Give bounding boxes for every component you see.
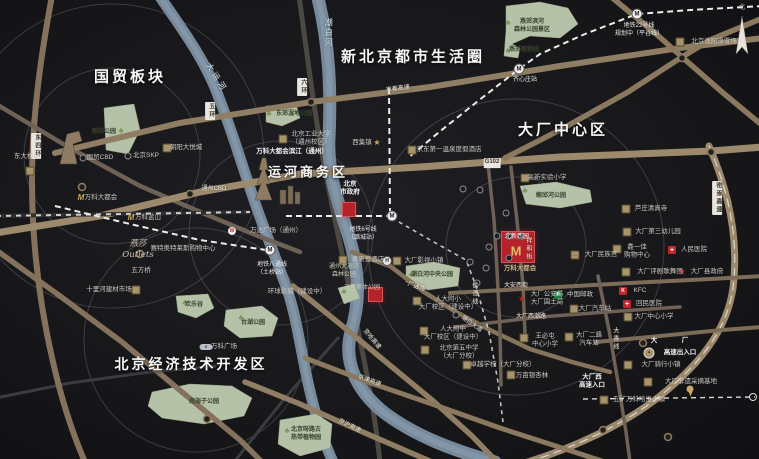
park-dongjiao-wetland: 东郊湿地公园 [276, 111, 312, 119]
poi-dot-icon [80, 155, 87, 162]
poi-dachang-expwy-exit: 高速出入口 [664, 349, 697, 357]
theater-icon [622, 268, 631, 277]
poi-wangbitun-primary: 王必屯 中心小学 [532, 333, 558, 350]
poi-chaoyang-joy-city: 朝阳大悦城 [170, 144, 203, 152]
poi-china-post: 中国邮政 [567, 291, 593, 299]
tree-icon: ♣ [266, 110, 271, 118]
road-jingjin-expwy: 京津高速 [356, 374, 381, 390]
river-dayunhe: 大运河 [203, 61, 229, 94]
road-5th-ring: 五环 [205, 102, 215, 120]
poi-yuyang-ski-resort: 北京渔阳滑雪场 [691, 38, 737, 46]
kindergarten-icon [623, 228, 632, 237]
ski-icon [676, 38, 685, 47]
poi-vanke-plaza: 万科广场 [211, 343, 237, 351]
poi-kfc: KFC [634, 287, 647, 295]
project-brand-name: 万科大都会 [504, 265, 537, 273]
metro-qixinzhuang-station: 齐心庄站 [513, 77, 537, 85]
poi-beijing-no5-middle: 北京第五中学 （大厂分校） [440, 345, 479, 362]
stop-marker-icon [503, 210, 510, 217]
park-happy-valley: 欢乐谷 [185, 302, 203, 310]
poi-ginkgo-forest: 万亩银杏林 [516, 372, 549, 380]
market-icon [132, 286, 141, 295]
minzu-palace-icon: — [571, 251, 580, 260]
zone-dachang-center: 大厂中心区 [518, 120, 608, 140]
picking-base-icon [644, 378, 653, 387]
tree-icon: ♣ [118, 127, 123, 135]
poi-dachang-heritage-picking-base: 大厂非遗采摘基地 [665, 378, 717, 386]
tree-icon: ♣ [505, 19, 510, 27]
poi-dachang-county-govt: 大厂县政府 [691, 268, 724, 276]
poi-beijing-govt: 北京 市政府 [340, 181, 360, 198]
poi-wufangqiao: 五方桥 [131, 267, 151, 275]
govt-star-icon: ★ [518, 295, 526, 304]
park-baoqiu-river: 鲍邱河公园 [536, 193, 566, 201]
poi-zhuoyue-school: 卓越学校（大厂分校） [471, 361, 536, 369]
poi-dachang-pingju-troupe: 大厂评剧歌舞团 [637, 268, 683, 276]
park-chaoyang: 朝阳公园 [92, 129, 116, 137]
wanda-logo-icon: W [228, 227, 236, 235]
poi-bjut-tongzhou-campus: 北京工业大学 （通州校区） [292, 131, 331, 148]
park-chaobai-central: 潮白河中央公园 [411, 272, 453, 280]
road-jingqin-expwy: 京秦高速 [386, 85, 411, 96]
stop-marker-icon [483, 265, 490, 272]
rail-station-icon [26, 167, 35, 176]
poi-jingdong-no1-hot-spring: 京东第一温泉度假酒店 [417, 146, 482, 154]
stop-marker-icon [453, 312, 460, 319]
road-daan-west-st: 大安西街 [504, 283, 528, 291]
location-map: ♣♣♣♣♣♣♣♣♣♣♣—★MMVW++★★MMMMHKP•M国贸板块新北京都市生… [0, 0, 759, 459]
poi-sheraton-hotel: 喜来登酒店 [352, 256, 385, 264]
poi-vanke-lanshan: 万科蓝山 [135, 214, 161, 222]
park-yanjiao-riverside-forest: 燕郊滨河 森林公园景区 [514, 19, 550, 35]
road-changtong-rd: 厂通路 [406, 282, 426, 295]
tree-icon: ♣ [522, 187, 527, 195]
bus-icon [565, 333, 574, 342]
river-chaobai: 潮白河 [323, 18, 333, 48]
university-icon [279, 135, 288, 144]
road-mizhuo-expwy: 密涿高速 [712, 181, 722, 215]
park-nanhaizi: 南海子公园 [189, 399, 219, 407]
stop-marker-icon [486, 244, 493, 251]
hotel-icon [339, 256, 348, 265]
school-icon [520, 334, 529, 343]
stop-marker-icon [494, 233, 501, 240]
zone-guomao: 国贸板块 [94, 67, 166, 87]
poi-guomao-cbd: 国贸CBD [87, 154, 114, 162]
poi-dachang-no2-bus-station: 大厂二路 汽车站 [576, 332, 602, 349]
location-pin-icon [687, 386, 694, 393]
poi-beijing-skp: 北京SKP [133, 152, 159, 160]
measure-end-icon [749, 393, 757, 401]
hospital-cross-icon: + [623, 300, 631, 308]
poi-dachang-west-expwy-entrance: 大厂西 高速入口 [579, 374, 605, 391]
poi-dachang-cycling-town: 大厂骑行小镇 [642, 361, 681, 369]
road-6th-ring: 六环 [297, 78, 307, 96]
zone-new-beijing-life-circle: 新北京都市生活圈 [341, 47, 485, 67]
road-g102: G102 [484, 158, 501, 168]
poi-vanke-metropolis: 万科大都会 [85, 194, 118, 202]
mosque-icon [622, 205, 631, 214]
road-jingha-expwy: 京哈高速 [360, 328, 381, 351]
poi-dongdaqiao-station: 东大桥站 [14, 153, 40, 161]
poi-vanke-metropolis-binjiang: 万科大都会滨江（通州） [256, 148, 328, 156]
poi-xiji-town: 西集镇 [352, 139, 372, 147]
poi-gaoxin-experimental-primary: 高新实验小学 [528, 174, 567, 182]
bus-icon [570, 305, 579, 314]
poi-dachang-central-primary: 大厂中心小学 [635, 313, 674, 321]
poi-dachang-minzu-palace: 大厂民族宫 [585, 251, 618, 259]
poi-wanda-plaza-tongzhou: 万达广场（通州） [250, 227, 302, 235]
town-star-icon: ★ [373, 139, 380, 147]
film-town-icon [393, 257, 402, 266]
metro-station-icon: M [387, 211, 398, 222]
poi-dachang-film-town: 大厂影视小镇 [405, 257, 444, 265]
poi-huimin-hospital: 回民医院 [636, 300, 662, 308]
stop-marker-icon [477, 187, 484, 194]
town-icon [600, 396, 609, 405]
poi-shilihe-building-market: 十里河建材市场 [86, 286, 132, 294]
poi-dachang-bus-station: 大厂汽车站 [579, 305, 612, 313]
poi-saite-outlets-mall: 赛特奥特莱斯购物中心 [151, 245, 216, 253]
hospital-cross-icon: + [668, 246, 676, 254]
poi-dot-icon [125, 153, 132, 160]
road-tongzhou-cbd: 通州CBD [202, 186, 227, 194]
stop-marker-icon [467, 259, 474, 266]
metro-station-icon: M [265, 245, 276, 256]
expwy-exit-icon: • [644, 348, 655, 359]
vanke-logo-icon: M [78, 194, 85, 202]
zone-canal-business-district: 运河商务区 [268, 165, 348, 182]
project-logo-icon: M [511, 245, 522, 258]
poi-universal-studios: 环球影城（建设中） [268, 288, 327, 296]
metro-line22-note: 地铁22号线 规划中（平谷线） [615, 23, 663, 39]
poi-xinyijia-mall: 鑫一佳 购物中心 [624, 244, 650, 261]
metro-batong-tuqiao: 地铁八通线 （土桥站） [257, 262, 287, 278]
zone-bda: 北京经济技术开发区 [115, 355, 268, 373]
road-dachang-xichao-rd: 大厂西潮路 [516, 314, 546, 322]
poi-peoples-hospital: 人民医院 [681, 246, 707, 254]
compass-north-label: 北 [739, 5, 745, 13]
vanke-logo-icon: M [128, 214, 135, 222]
poi-yansha-outlets: 燕莎 Outlets [122, 239, 153, 261]
metro-station-icon: M [632, 9, 643, 20]
poi-rdfz-middle-dachang: 人大附中 大厂校区（建设中） [424, 326, 483, 343]
hotel-icon [408, 146, 417, 155]
poi-dachang-exit-name: 大 厂 [651, 337, 698, 345]
school-icon [624, 313, 633, 322]
poi-dachang-no3-kindergarten: 大厂第三幼儿园 [635, 228, 681, 236]
poi-hello-town: 五矿万科哈洛小镇 [613, 396, 665, 404]
park-yalugu-tropical: 北京呀路古 热带植物园 [291, 427, 321, 443]
map-labels-layer: ♣♣♣♣♣♣♣♣♣♣♣—★MMVW++★★MMMMHKP•M国贸板块新北京都市生… [0, 0, 759, 459]
metro-line6-lucheng: 地铁6号线 （潞城站） [348, 227, 378, 243]
stop-marker-icon [460, 186, 467, 193]
school-icon [421, 346, 430, 355]
metro-station-icon: M [514, 64, 525, 75]
poi-rdfx-primary-dachang: 人大附小 大厂校区（建设中） [419, 296, 478, 313]
park-yanjiao-botanical: 燕郊植物园 [509, 47, 539, 55]
park-taihu: 台湖公园 [241, 320, 265, 328]
road-jinghu-expwy: 京沪高速 [336, 418, 361, 436]
tree-icon: ♣ [284, 427, 289, 435]
road-daxiang-line: 大香线 [610, 327, 618, 351]
kfc-icon: K [619, 287, 627, 295]
project-area-name: 北新西园 [505, 234, 529, 242]
poi-dachang-public-security: 大厂公安局 大厂国土局 [531, 291, 564, 308]
stop-marker-icon [506, 255, 513, 262]
park-grand-canal-forest: 通州大运河 森林公园 [329, 264, 359, 280]
ginkgo-icon [507, 371, 516, 380]
park-canal-olympic: 运河奥体公园 [344, 285, 380, 293]
poi-luzhuang-mosque: 芦庄清真寺 [635, 205, 668, 213]
cycling-town-icon [624, 361, 633, 370]
